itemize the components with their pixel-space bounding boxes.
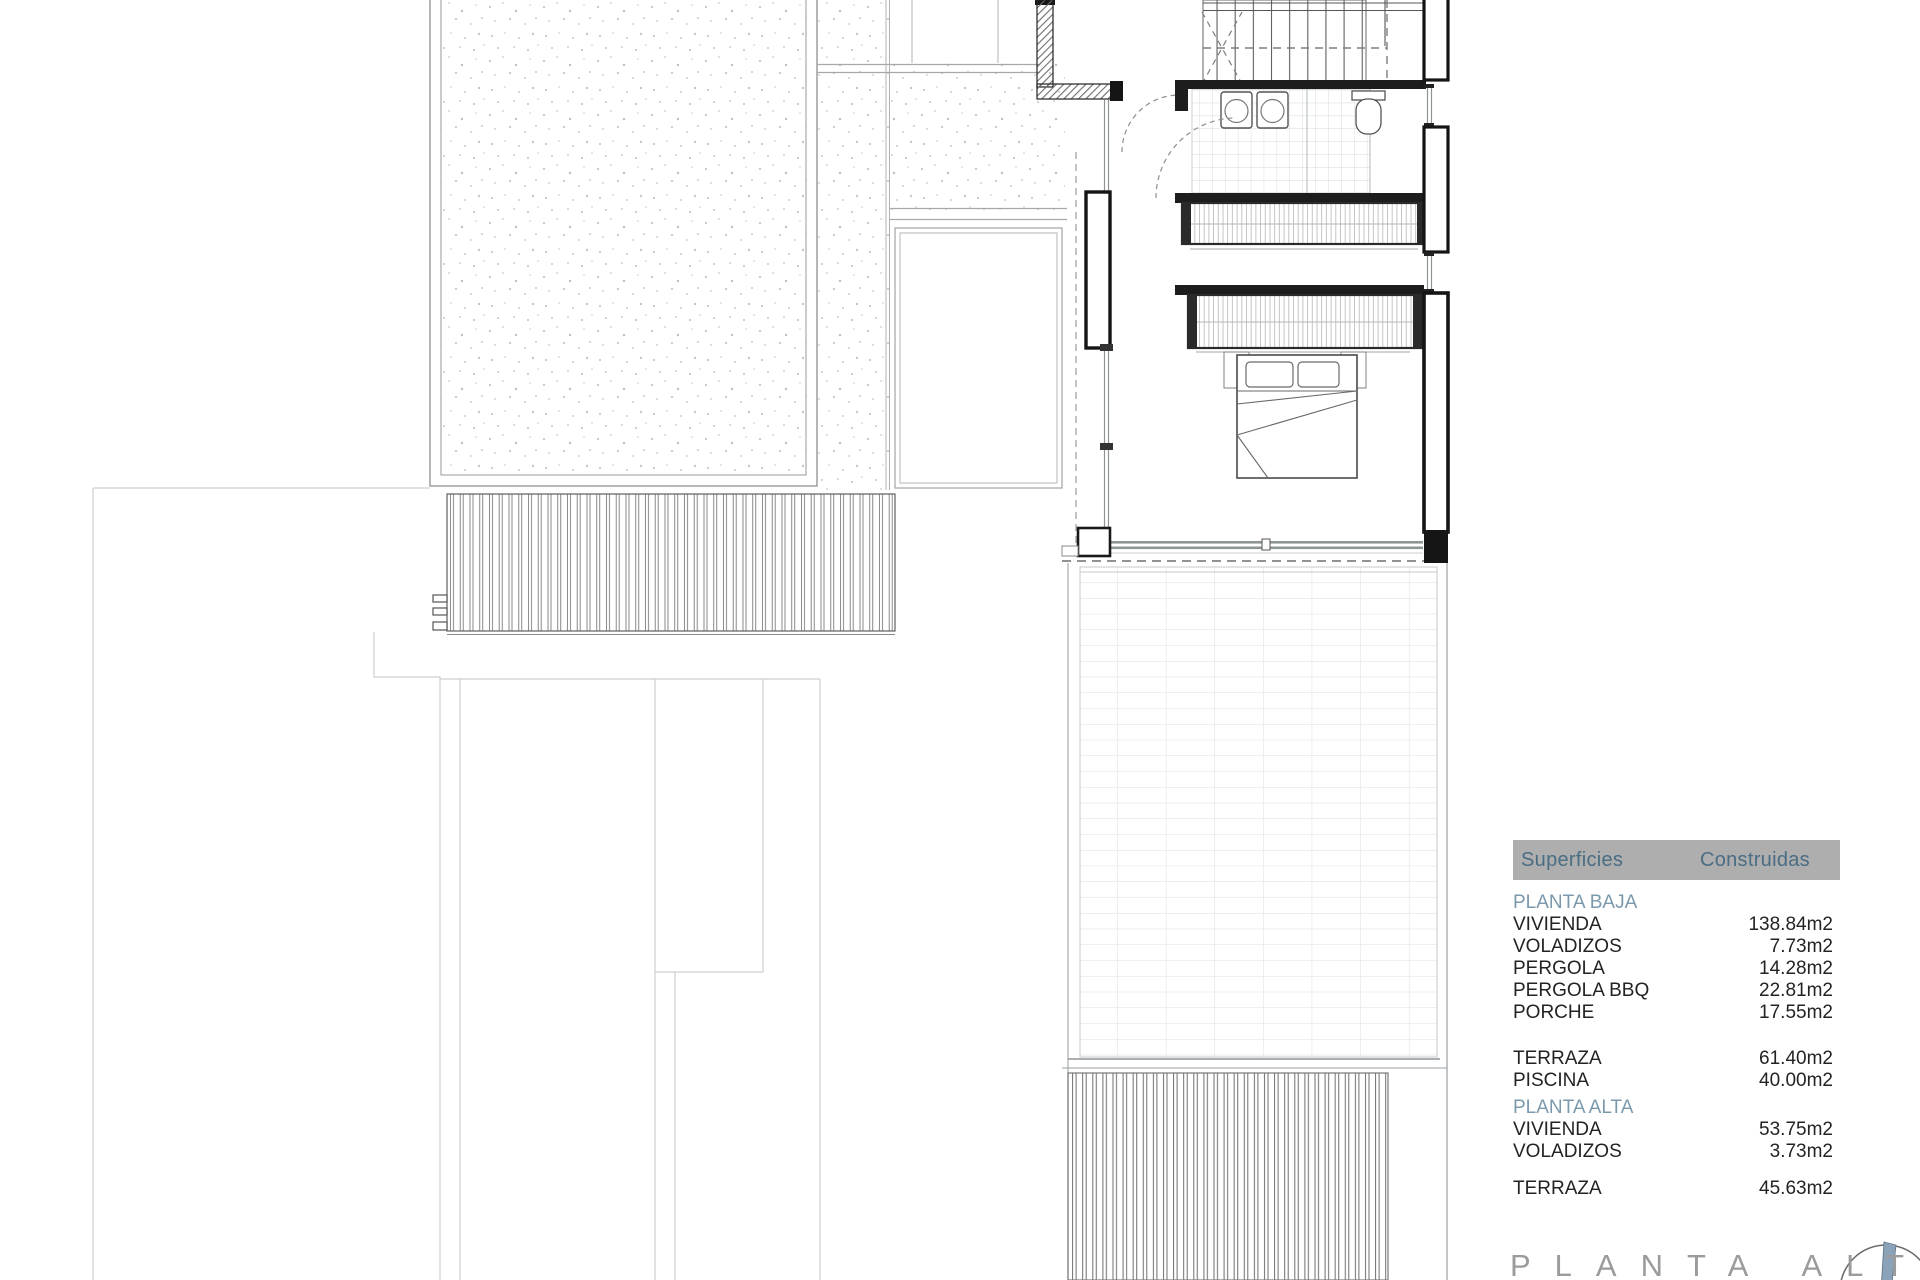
area-value: 40.00m2: [1759, 1070, 1840, 1092]
roof-opening: [895, 228, 1062, 488]
area-label: VOLADIZOS: [1513, 1141, 1622, 1163]
table-header-col1: Superficies: [1521, 849, 1623, 872]
area-value: 61.40m2: [1759, 1048, 1840, 1070]
area-value: 3.73m2: [1770, 1141, 1840, 1163]
area-value: 45.63m2: [1759, 1178, 1840, 1200]
bed-icon: [1224, 352, 1366, 478]
table-row: VIVIENDA53.75m2: [1513, 1119, 1840, 1141]
table-row: VOLADIZOS3.73m2: [1513, 1141, 1840, 1163]
table-row: TERRAZA61.40m2: [1513, 1048, 1840, 1070]
area-label: PERGOLA: [1513, 958, 1605, 980]
table-row: VOLADIZOS7.73m2: [1513, 936, 1840, 958]
table-header-col2: Construidas: [1700, 849, 1810, 872]
table-header: Superficies Construidas: [1513, 840, 1840, 880]
area-label: PERGOLA BBQ: [1513, 980, 1649, 1002]
roof-area: [430, 0, 817, 486]
table-section: TERRAZA45.63m2: [1513, 1178, 1840, 1200]
sink-icon: [1257, 92, 1288, 128]
wardrobe: [1182, 203, 1422, 249]
table-row: PERGOLA BBQ22.81m2: [1513, 980, 1840, 1002]
area-label: PORCHE: [1513, 1002, 1594, 1024]
table-section: PLANTA ALTAVIVIENDA53.75m2VOLADIZOS3.73m…: [1513, 1097, 1840, 1163]
table-row: PORCHE17.55m2: [1513, 1002, 1840, 1024]
table-rows: PLANTA BAJAVIVIENDA138.84m2VOLADIZOS7.73…: [1513, 892, 1840, 1200]
areas-table: Superficies Construidas PLANTA BAJAVIVIE…: [1513, 840, 1840, 1200]
pergola-west: [433, 494, 895, 635]
area-value: 22.81m2: [1759, 980, 1840, 1002]
wardrobe: [1188, 295, 1422, 352]
west-glass-wall: [1076, 100, 1113, 559]
staircase: [1202, 0, 1442, 84]
table-row: TERRAZA45.63m2: [1513, 1178, 1840, 1200]
toilet-icon: [1352, 91, 1385, 134]
table-row: PERGOLA14.28m2: [1513, 958, 1840, 980]
area-label: VIVIENDA: [1513, 914, 1602, 936]
area-value: 138.84m2: [1748, 914, 1840, 936]
pergola-south: [1068, 1073, 1388, 1280]
area-label: TERRAZA: [1513, 1048, 1602, 1070]
area-label: PISCINA: [1513, 1070, 1589, 1092]
sink-icon: [1221, 92, 1252, 128]
area-value: 7.73m2: [1770, 936, 1840, 958]
house-plan: [1035, 0, 1448, 563]
table-row: VIVIENDA138.84m2: [1513, 914, 1840, 936]
east-wall: [1424, 0, 1448, 563]
area-label: TERRAZA: [1513, 1178, 1602, 1200]
bathroom: [1122, 89, 1385, 198]
area-label: VIVIENDA: [1513, 1119, 1602, 1141]
table-section: TERRAZA61.40m2PISCINA40.00m2: [1513, 1048, 1840, 1092]
area-value: 53.75m2: [1759, 1119, 1840, 1141]
south-glass-wall: [1062, 528, 1423, 556]
section-title: PLANTA ALTA: [1513, 1097, 1840, 1119]
section-title: PLANTA BAJA: [1513, 892, 1840, 914]
plan-title: PLANTA ALTA: [1510, 1248, 1920, 1280]
table-section: PLANTA BAJAVIVIENDA138.84m2VOLADIZOS7.73…: [1513, 892, 1840, 1024]
door-swing-arc: [1122, 95, 1179, 152]
table-row: PISCINA40.00m2: [1513, 1070, 1840, 1092]
area-value: 14.28m2: [1759, 958, 1840, 980]
area-label: VOLADIZOS: [1513, 936, 1622, 958]
floor-plan-page: Superficies Construidas PLANTA BAJAVIVIE…: [0, 0, 1920, 1280]
hatched-wall: [1035, 0, 1123, 101]
area-value: 17.55m2: [1759, 1002, 1840, 1024]
